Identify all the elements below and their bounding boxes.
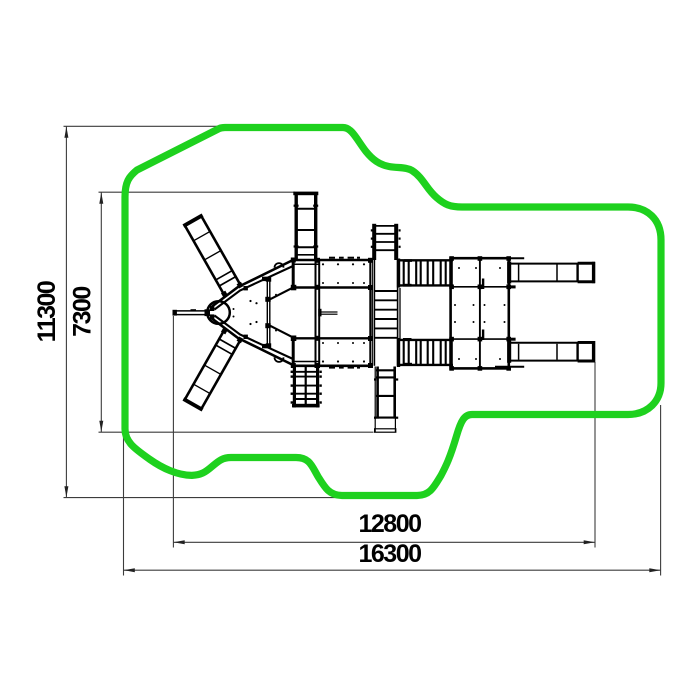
svg-text:16300: 16300	[359, 540, 422, 568]
svg-text:7300: 7300	[69, 287, 97, 337]
svg-text:12800: 12800	[359, 510, 422, 538]
svg-text:11300: 11300	[33, 281, 61, 342]
